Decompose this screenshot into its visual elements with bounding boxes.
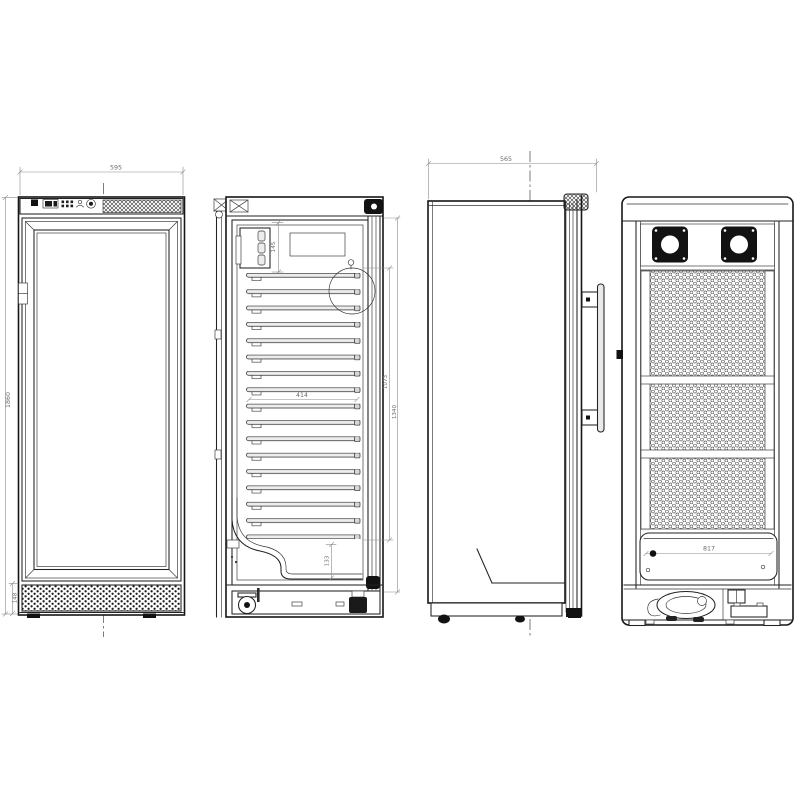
top-vent-grille xyxy=(103,200,181,213)
evaporator-bracket xyxy=(236,236,241,264)
gasket-clip xyxy=(215,450,221,459)
dim-overall-height: 1860 xyxy=(2,195,17,616)
fan-deck xyxy=(641,224,775,270)
side-body xyxy=(428,201,565,603)
post-screw xyxy=(235,561,237,563)
panel-side-strip xyxy=(765,271,774,529)
glass-panel-frame xyxy=(34,230,169,570)
dim-label-133: 133 xyxy=(325,555,331,566)
side-door xyxy=(566,196,582,617)
compressor-cap xyxy=(698,597,707,606)
base-vent-mark xyxy=(336,602,344,606)
technical-drawing-canvas: 595 1860 148 xyxy=(0,0,800,800)
bottom-tab xyxy=(726,620,734,624)
display-segment xyxy=(54,201,58,207)
rear-foot xyxy=(629,620,645,626)
caster-hub xyxy=(244,602,250,608)
evaporator-slot xyxy=(258,243,265,253)
cooler-orthographic-drawing: 595 1860 148 xyxy=(0,0,800,800)
panel-side-strip xyxy=(641,271,650,529)
foot-stem xyxy=(352,591,364,597)
lower-rear-panel: 817 xyxy=(640,533,777,580)
hinge-pin xyxy=(216,211,223,218)
caster-foot xyxy=(27,614,40,619)
electrical-tray xyxy=(731,606,767,617)
shelf-rails xyxy=(246,273,361,539)
dim-grille-height: 148 xyxy=(9,581,19,615)
light-switch-dot xyxy=(89,202,93,206)
adjustable-foot xyxy=(349,597,367,613)
perforated-area xyxy=(641,271,774,529)
caster-foot xyxy=(143,614,156,619)
hinge-block-hole xyxy=(371,204,377,210)
evaporator-housing xyxy=(240,228,270,268)
fan-bolt xyxy=(724,257,727,260)
dim-overall-width: 595 xyxy=(18,165,185,196)
fan-left-hub xyxy=(661,236,679,254)
fan-bolt xyxy=(655,229,658,232)
fan-right-hub xyxy=(730,236,748,254)
dim-label-414: 414 xyxy=(296,392,308,399)
view-rear: 817 xyxy=(617,197,794,626)
dim-label-1340: 1340 xyxy=(392,404,398,419)
door-foot xyxy=(568,610,581,618)
handle-bracket-bolt xyxy=(586,416,590,420)
fan-bolt xyxy=(724,229,727,232)
handle-bar xyxy=(598,284,605,432)
display-segment xyxy=(45,201,52,207)
control-strip xyxy=(20,199,183,215)
dim-label-565: 565 xyxy=(500,156,512,163)
dim-label-grille: 148 xyxy=(13,592,19,603)
hinge-cover-hatched xyxy=(564,194,588,210)
drain-plug xyxy=(650,550,657,557)
brand-logo-block xyxy=(31,200,38,207)
rear-hinge-pin xyxy=(617,350,624,359)
post-screw xyxy=(231,556,233,558)
panel-screw xyxy=(646,568,650,572)
dim-interior-height: 1340 xyxy=(384,216,400,594)
panel-screw xyxy=(761,565,765,569)
bottom-vent-grille xyxy=(22,585,181,611)
fan-bolt xyxy=(683,257,686,260)
evaporator-box xyxy=(236,228,270,268)
tray-tab xyxy=(734,603,740,606)
panel-divider-rail xyxy=(641,450,774,458)
caster-wheel xyxy=(515,616,525,623)
view-side: 565 xyxy=(426,151,604,637)
gasket-clip xyxy=(215,330,221,339)
door-handle xyxy=(582,284,604,432)
panel-divider-rail xyxy=(641,376,774,384)
handle-bracket-bolt xyxy=(586,298,590,302)
tray-tab xyxy=(757,603,763,606)
condenser-panel xyxy=(641,271,774,529)
dim-label-145: 145 xyxy=(271,241,277,252)
fan-bolt xyxy=(752,229,755,232)
rear-foot xyxy=(764,620,780,626)
fan-bolt xyxy=(655,257,658,260)
bottom-tab xyxy=(646,620,654,624)
base-front-bar xyxy=(257,588,260,602)
base-vent-mark xyxy=(292,602,302,606)
dim-label-1073: 1073 xyxy=(383,374,389,389)
fan-bolt xyxy=(683,229,686,232)
view-front-closed: 595 1860 148 xyxy=(2,165,185,638)
detail-marker xyxy=(348,260,354,266)
dim-label-817: 817 xyxy=(703,546,715,553)
gasket-corner xyxy=(366,576,380,589)
evaporator-slot xyxy=(258,231,265,241)
lower-panel-body xyxy=(640,533,777,580)
dim-overall-depth: 565 xyxy=(426,156,598,199)
dim-label-width: 595 xyxy=(110,165,122,172)
view-front-open: 145 414 1073 xyxy=(214,197,400,617)
glass-door xyxy=(19,218,182,581)
dim-label-height: 1860 xyxy=(5,392,12,408)
base-box xyxy=(431,603,562,616)
display-cutout xyxy=(290,233,345,256)
evaporator-slot xyxy=(258,255,265,265)
post-vent-slot xyxy=(227,540,239,548)
caster-wheel xyxy=(438,615,450,624)
fan-bolt xyxy=(752,257,755,260)
